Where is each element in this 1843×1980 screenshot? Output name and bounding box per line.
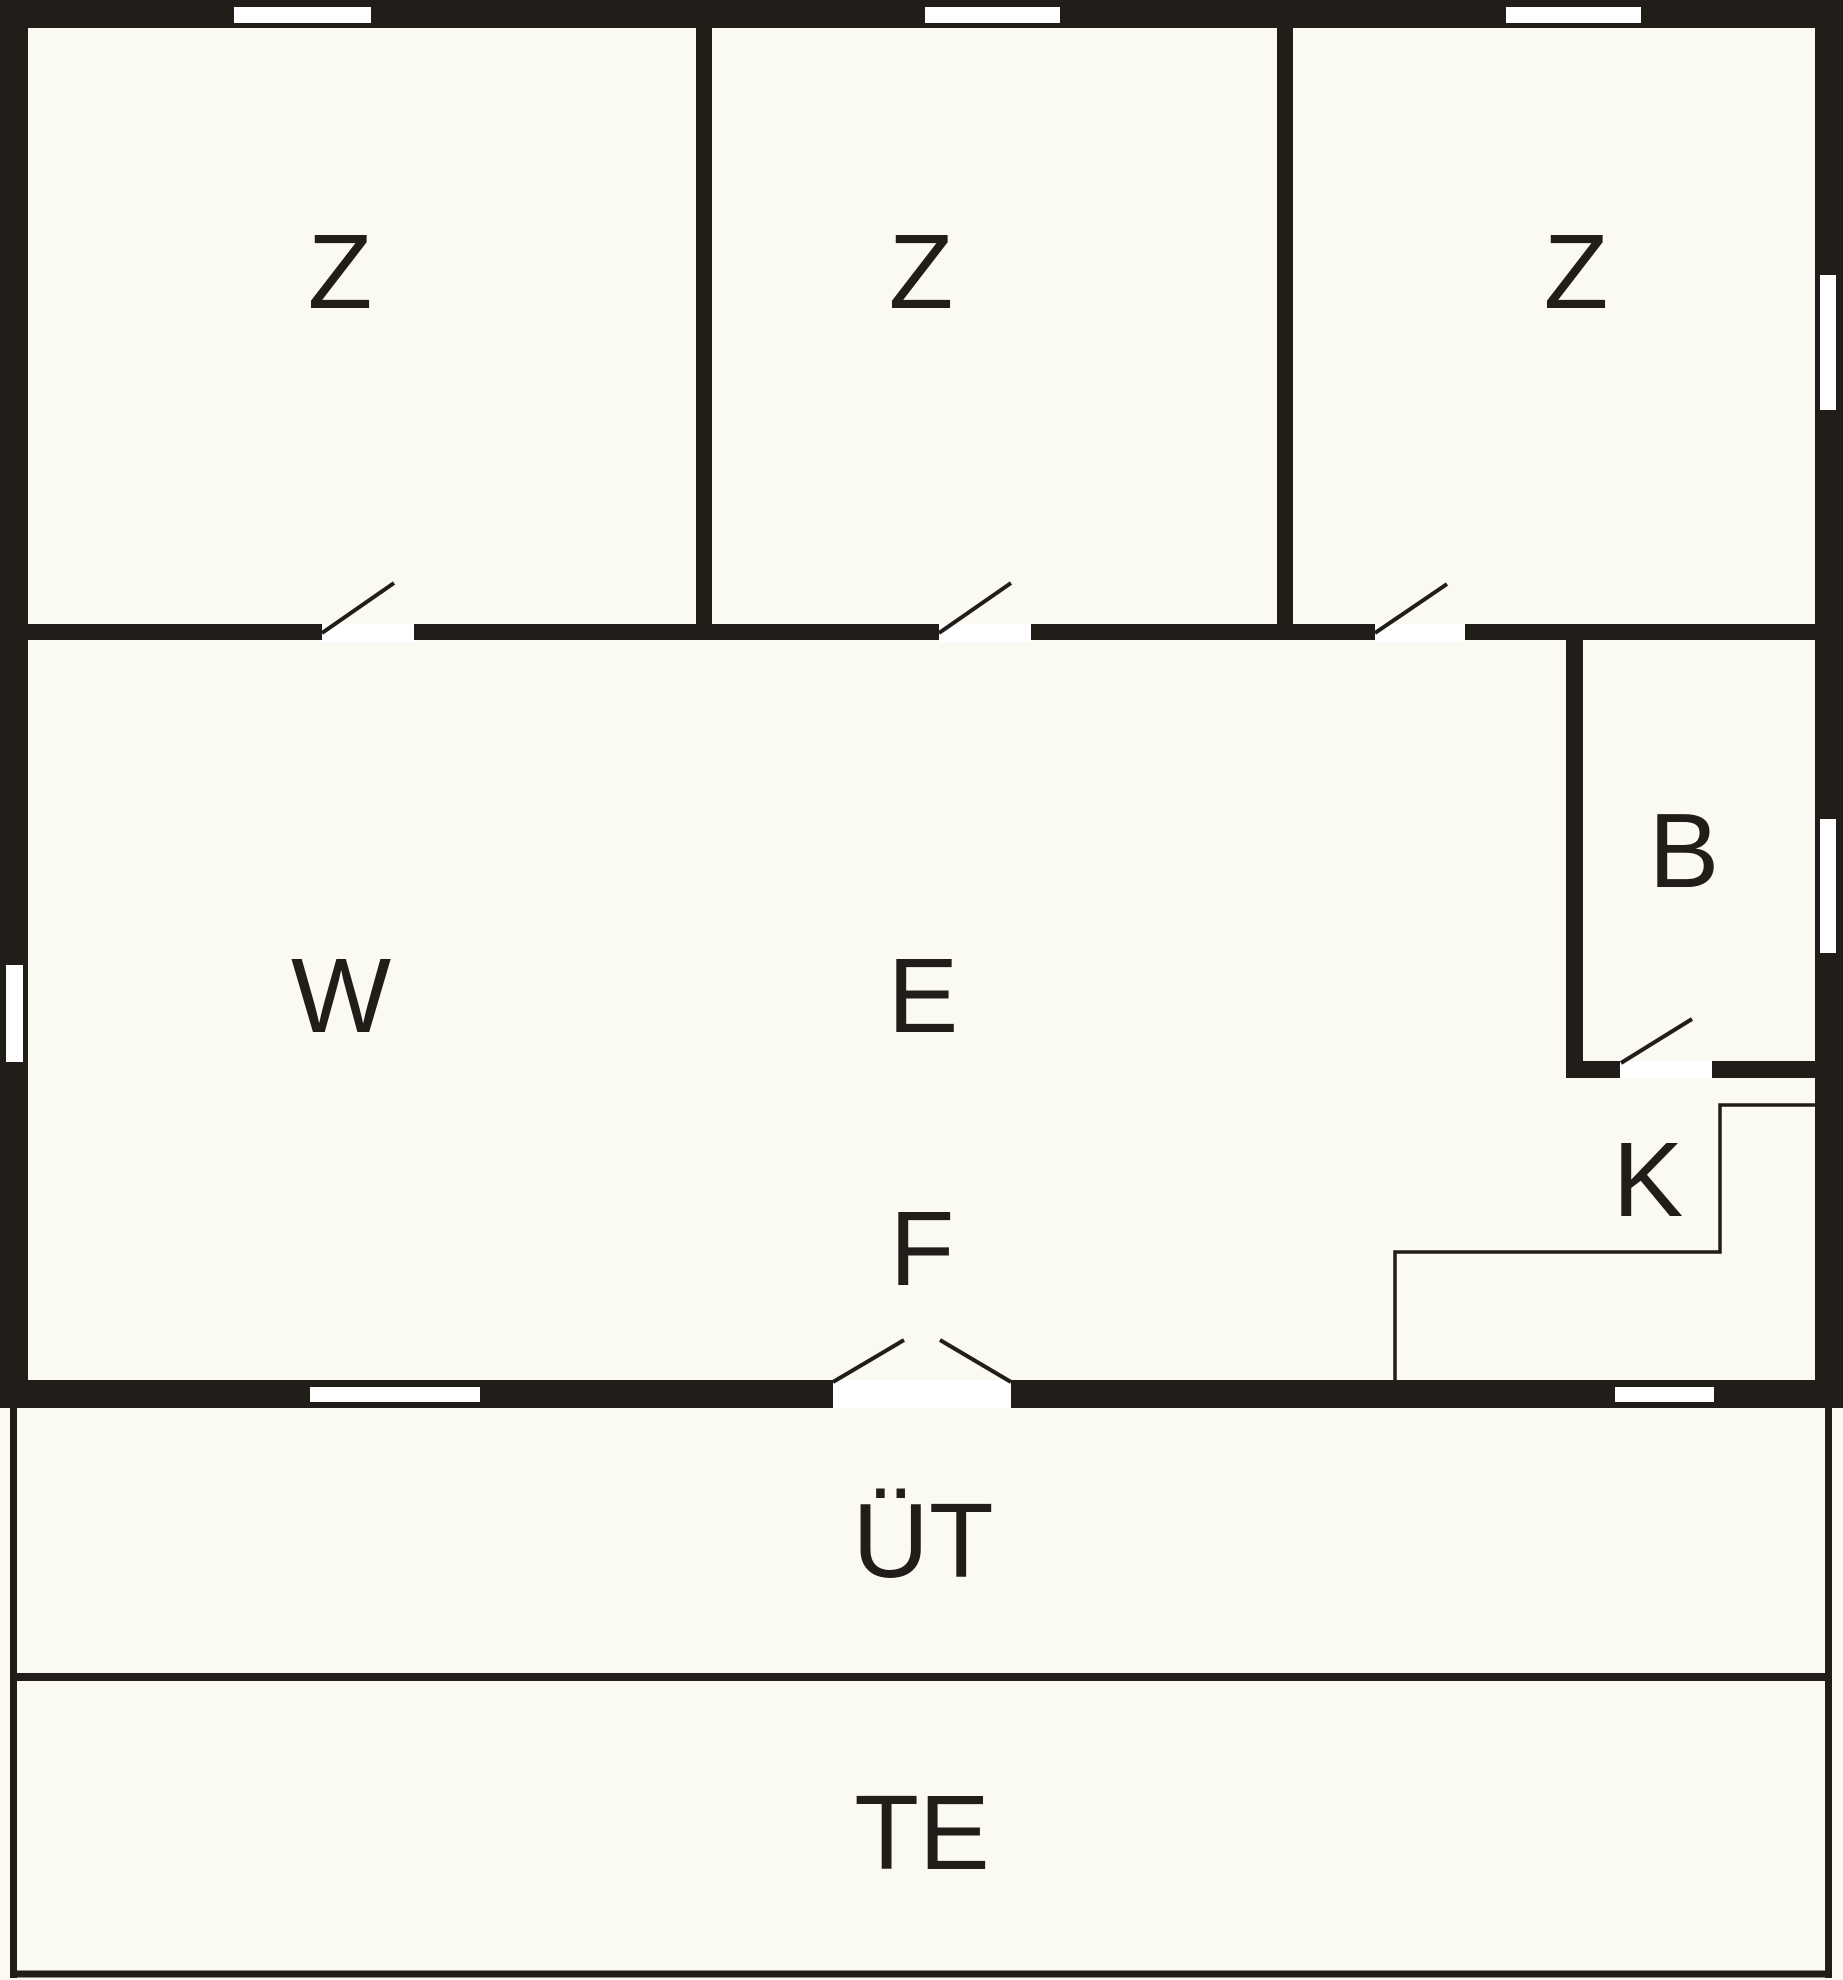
svg-text:Z: Z bbox=[308, 213, 373, 331]
svg-text:Z: Z bbox=[1544, 213, 1609, 331]
svg-text:ÜT: ÜT bbox=[852, 1482, 993, 1600]
svg-text:E: E bbox=[888, 937, 959, 1055]
svg-text:B: B bbox=[1649, 792, 1720, 910]
svg-text:Z: Z bbox=[889, 213, 954, 331]
svg-text:TE: TE bbox=[854, 1774, 989, 1892]
svg-text:W: W bbox=[291, 937, 391, 1055]
svg-text:F: F bbox=[890, 1190, 955, 1308]
svg-text:K: K bbox=[1613, 1121, 1684, 1239]
